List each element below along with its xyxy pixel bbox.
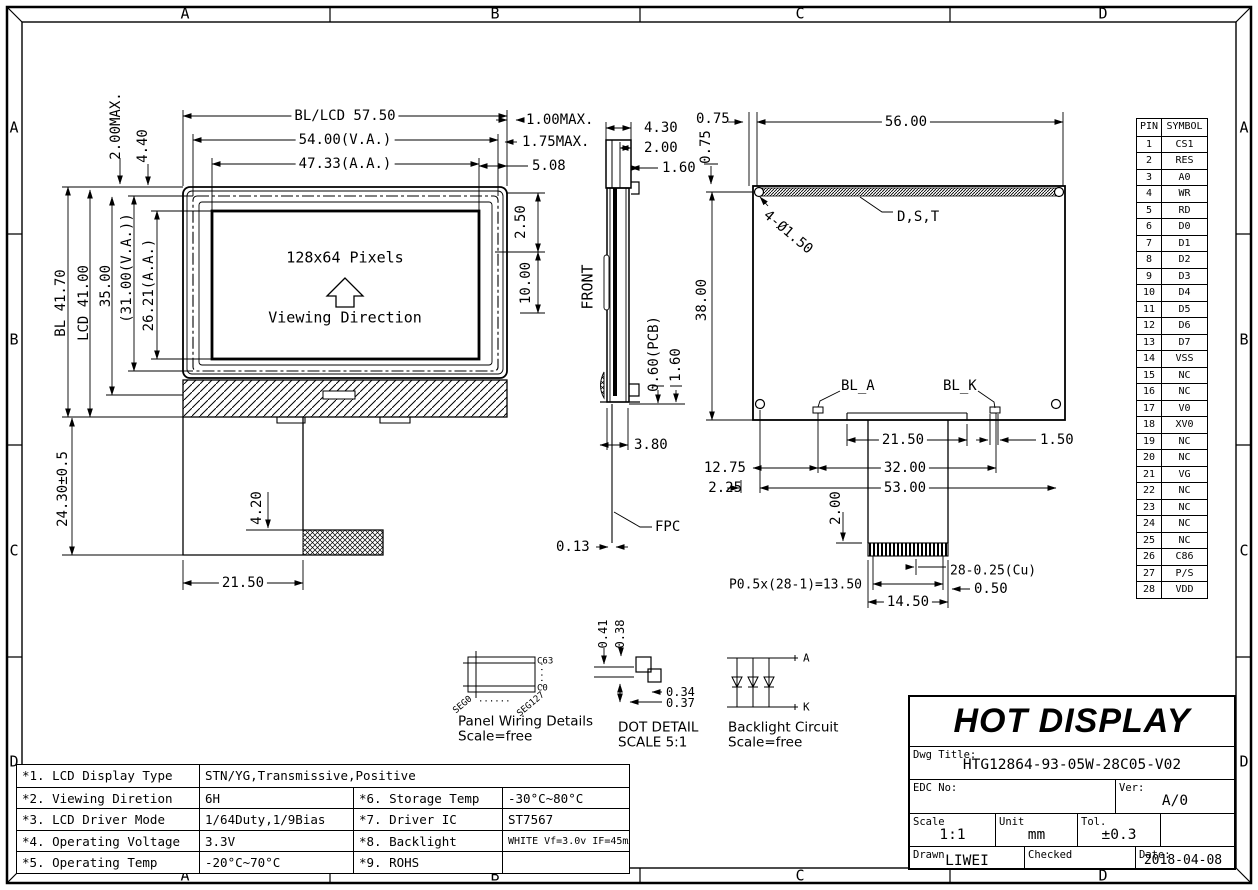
dim-aa-width: 47.33(A.A.) xyxy=(296,157,395,171)
dwg-title-value: HTG12864-93-05W-28C05-V02 xyxy=(910,757,1234,773)
date-cell: Date: 2018-04-08 xyxy=(1135,847,1230,868)
viewing-direction-label: Viewing Direction xyxy=(268,311,422,326)
dot-dim-0-37: 0.37 xyxy=(666,697,695,709)
pin-number: 13 xyxy=(1137,334,1161,351)
dim-bl-lcd-width: BL/LCD 57.50 xyxy=(291,109,398,123)
pin-number: 17 xyxy=(1137,400,1161,417)
pin-number: 10 xyxy=(1137,284,1161,301)
pin-number: 11 xyxy=(1137,301,1161,318)
dim-va-height: (31.00(V.A.)) xyxy=(120,213,134,323)
pin-symbol: VSS xyxy=(1161,350,1207,367)
title-block-edc-row: EDC No: Ver: A/0 xyxy=(910,779,1234,813)
pin-symbol: V0 xyxy=(1161,400,1207,417)
screen-resolution-label: 128x64 Pixels xyxy=(286,251,403,266)
dim-lcd-height: LCD 41.00 xyxy=(77,265,91,341)
pin-number: 25 xyxy=(1137,532,1161,549)
dim-12-75: 12.75 xyxy=(704,461,746,475)
pin-table-header-symbol: SYMBOL xyxy=(1161,119,1207,136)
spec-table: *1. LCD Display Type STN/YG,Transmissive… xyxy=(16,764,630,874)
pin-symbol: D6 xyxy=(1161,317,1207,334)
title-block: HOT DISPLAY Dwg Title: HTG12864-93-05W-2… xyxy=(908,695,1236,870)
dim-top-gap: 2.00MAX. xyxy=(109,92,123,159)
dot-dim-0-41: 0.41 xyxy=(597,620,609,649)
checked-label: Checked xyxy=(1028,849,1072,861)
spec-label: *9. ROHS xyxy=(353,851,502,873)
pin-number: 24 xyxy=(1137,515,1161,532)
spec-label: *6. Storage Temp xyxy=(353,787,502,809)
dst-label: D,S,T xyxy=(897,210,939,224)
spec-label: *1. LCD Display Type xyxy=(17,765,199,787)
pin-number: 2 xyxy=(1137,152,1161,169)
pin-number: 23 xyxy=(1137,499,1161,516)
bl-a-label: BL_A xyxy=(841,379,875,393)
backlight-cathode-label: K xyxy=(803,702,810,713)
dim-4-30: 4.30 xyxy=(644,121,678,135)
projection-symbol-cell xyxy=(1160,814,1234,846)
spec-value: -30°C~80°C xyxy=(502,787,629,809)
spec-value: WHITE Vf=3.0v IF=45mA xyxy=(502,830,629,852)
pin-symbol: D5 xyxy=(1161,301,1207,318)
dim-14-50: 14.50 xyxy=(884,595,932,609)
pin-number: 21 xyxy=(1137,466,1161,483)
dot-detail-title: DOT DETAIL xyxy=(618,721,698,735)
drawn-value: LIWEI xyxy=(910,853,1024,869)
dim-va-width: 54.00(V.A.) xyxy=(296,133,395,147)
dim-56-00: 56.00 xyxy=(882,115,930,129)
spec-value: -20°C~70°C xyxy=(199,851,353,873)
dim-10-00: 10.00 xyxy=(519,262,533,304)
dim-0-75-h: 0.75 xyxy=(696,112,730,126)
pin-symbol: D4 xyxy=(1161,284,1207,301)
pin-number: 15 xyxy=(1137,367,1161,384)
backlight-title: Backlight Circuit xyxy=(728,721,838,735)
pin-symbol: D1 xyxy=(1161,235,1207,252)
zone-col-top-c: C xyxy=(795,7,804,22)
backlight-circuit-drawing xyxy=(727,655,798,710)
pin-number: 18 xyxy=(1137,416,1161,433)
zone-row-left-a: A xyxy=(9,121,18,136)
pin-number: 8 xyxy=(1137,251,1161,268)
edc-no-label: EDC No: xyxy=(913,782,957,794)
zone-row-right-d: D xyxy=(1239,755,1248,770)
dim-aa-height: 26.21(A.A.) xyxy=(142,239,156,332)
pin-symbol: NC xyxy=(1161,482,1207,499)
pin-symbol: CS1 xyxy=(1161,136,1207,153)
date-value: 2018-04-08 xyxy=(1136,853,1230,868)
spec-label: *7. Driver IC xyxy=(353,808,502,830)
dot-dim-0-38: 0.38 xyxy=(614,620,626,649)
pin-symbol: NC xyxy=(1161,449,1207,466)
dim-bl-height: BL 41.70 xyxy=(54,269,68,336)
pin-number: 9 xyxy=(1137,268,1161,285)
pin-symbol: A0 xyxy=(1161,169,1207,186)
dim-0-50: 0.50 xyxy=(974,582,1008,596)
dim-tail-length: 24.30±0.5 xyxy=(56,451,70,527)
dim-38-00: 38.00 xyxy=(695,276,709,324)
pin-number: 5 xyxy=(1137,202,1161,219)
pin-symbol: D2 xyxy=(1161,251,1207,268)
tol-cell: Tol. ±0.3 xyxy=(1077,814,1160,846)
dim-cu-fingers: 28-0.25(Cu) xyxy=(950,565,1036,578)
pin-symbol: NC xyxy=(1161,383,1207,400)
dim-bezel-top: 4.40 xyxy=(136,129,150,163)
drawn-cell: Drawn LIWEI xyxy=(910,847,1024,868)
spec-label: *4. Operating Voltage xyxy=(17,830,199,852)
spec-label: *2. Viewing Diretion xyxy=(17,787,199,809)
panel-dots-horizontal: ...... xyxy=(478,696,511,705)
title-block-sign-row: Drawn LIWEI Checked Date: 2018-04-08 xyxy=(910,846,1234,868)
dim-21-50-back: 21.50 xyxy=(879,433,927,447)
dim-1-00-max: 1.00MAX. xyxy=(526,113,593,127)
dim-32-00: 32.00 xyxy=(881,461,929,475)
pin-symbol: XV0 xyxy=(1161,416,1207,433)
backlight-scale: Scale=free xyxy=(728,736,802,750)
spec-value: STN/YG,Transmissive,Positive xyxy=(199,765,629,787)
dim-tail-width: 21.50 xyxy=(219,576,267,590)
zone-col-top-b: B xyxy=(490,7,499,22)
dim-1-75-max: 1.75MAX. xyxy=(522,135,589,149)
title-block-dwg-row: Dwg Title: HTG12864-93-05W-28C05-V02 xyxy=(910,746,1234,779)
unit-cell: Unit mm xyxy=(995,814,1077,846)
zone-row-right-c: C xyxy=(1239,544,1248,559)
pin-symbol: P/S xyxy=(1161,565,1207,582)
side-view-drawing xyxy=(600,140,640,543)
spec-value: 1/64Duty,1/9Bias xyxy=(199,808,353,830)
pin-number: 19 xyxy=(1137,433,1161,450)
panel-wiring-scale: Scale=free xyxy=(458,730,532,744)
dim-1-60: 1.60 xyxy=(662,161,696,175)
pin-symbol: D3 xyxy=(1161,268,1207,285)
dim-2-50: 2.50 xyxy=(514,205,528,239)
ver-cell: Ver: A/0 xyxy=(1115,780,1234,813)
pin-table: PIN SYMBOL 1 CS1 2 RES 3 A0 4 WR 5 RD 6 … xyxy=(1136,118,1208,599)
pin-number: 27 xyxy=(1137,565,1161,582)
zone-col-bottom-d: D xyxy=(1098,869,1107,884)
dim-2-00-back: 2.00 xyxy=(829,491,843,525)
dot-detail-scale: SCALE 5:1 xyxy=(618,736,687,750)
pin-symbol: RD xyxy=(1161,202,1207,219)
pin-number: 1 xyxy=(1137,136,1161,153)
dim-total-thickness: 1.60 xyxy=(669,348,683,382)
tol-value: ±0.3 xyxy=(1078,827,1160,843)
pin-table-header-pin: PIN xyxy=(1137,119,1161,136)
dim-pcb-thickness: 0.60(PCB) xyxy=(647,316,661,392)
spec-label: *8. Backlight xyxy=(353,830,502,852)
pin-symbol: VDD xyxy=(1161,581,1207,598)
dim-3-80: 3.80 xyxy=(634,438,668,452)
pin-number: 3 xyxy=(1137,169,1161,186)
spec-value: 3.3V xyxy=(199,830,353,852)
dim-5-08: 5.08 xyxy=(532,159,566,173)
spec-label: *3. LCD Driver Mode xyxy=(17,808,199,830)
zone-col-top-d: D xyxy=(1098,7,1107,22)
pin-number: 12 xyxy=(1137,317,1161,334)
backlight-anode-label: A xyxy=(803,653,810,664)
dim-2-00: 2.00 xyxy=(644,141,678,155)
pin-number: 4 xyxy=(1137,185,1161,202)
zone-row-left-b: B xyxy=(9,333,18,348)
spec-value: 6H xyxy=(199,787,353,809)
pin-symbol: D7 xyxy=(1161,334,1207,351)
pin-number: 26 xyxy=(1137,548,1161,565)
scale-cell: Scale 1:1 xyxy=(910,814,995,846)
bl-k-label: BL_K xyxy=(943,379,977,393)
pin-symbol: NC xyxy=(1161,499,1207,516)
front-label: FRONT xyxy=(581,264,596,309)
fpc-label: FPC xyxy=(655,520,680,534)
scale-value: 1:1 xyxy=(910,827,995,843)
pin-symbol: NC xyxy=(1161,367,1207,384)
unit-value: mm xyxy=(996,827,1077,843)
dim-connector-height: 4.20 xyxy=(250,491,264,525)
company-name: HOT DISPLAY xyxy=(910,697,1234,745)
pin-number: 20 xyxy=(1137,449,1161,466)
pin-number: 22 xyxy=(1137,482,1161,499)
pin-symbol: WR xyxy=(1161,185,1207,202)
panel-wiring-title: Panel Wiring Details xyxy=(458,715,593,729)
pin-symbol: NC xyxy=(1161,532,1207,549)
zone-row-right-a: A xyxy=(1239,121,1248,136)
panel-wiring-detail-drawing xyxy=(463,651,535,698)
zone-row-left-c: C xyxy=(9,544,18,559)
pin-symbol: NC xyxy=(1161,515,1207,532)
pin-symbol: VG xyxy=(1161,466,1207,483)
pin-number: 7 xyxy=(1137,235,1161,252)
pin-number: 14 xyxy=(1137,350,1161,367)
dim-1-50: 1.50 xyxy=(1040,433,1074,447)
pin-symbol: D0 xyxy=(1161,218,1207,235)
dim-pin-pitch: P0.5x(28-1)=13.50 xyxy=(729,579,862,592)
front-view-drawing xyxy=(183,187,507,555)
pin-number: 16 xyxy=(1137,383,1161,400)
pin-symbol: RES xyxy=(1161,152,1207,169)
dim-fpc-thickness: 0.13 xyxy=(556,540,590,554)
zone-row-right-b: B xyxy=(1239,333,1248,348)
zone-col-top-a: A xyxy=(180,7,189,22)
dim-pcb-height: 35.00 xyxy=(99,265,113,307)
dim-53-00: 53.00 xyxy=(881,481,929,495)
dim-2-25: 2.25 xyxy=(708,481,742,495)
dim-0-75-v: 0.75 xyxy=(699,130,713,164)
pin-symbol: C86 xyxy=(1161,548,1207,565)
title-block-company-row: HOT DISPLAY xyxy=(910,697,1234,746)
spec-label: *5. Operating Temp xyxy=(17,851,199,873)
spec-value xyxy=(502,851,629,873)
ver-value: A/0 xyxy=(1116,793,1234,809)
edc-no-cell: EDC No: xyxy=(910,780,1115,813)
title-block-scale-row: Scale 1:1 Unit mm Tol. ±0.3 xyxy=(910,813,1234,846)
checked-cell: Checked xyxy=(1024,847,1135,868)
pin-symbol: NC xyxy=(1161,433,1207,450)
pin-number: 28 xyxy=(1137,581,1161,598)
spec-value: ST7567 xyxy=(502,808,629,830)
zone-col-bottom-c: C xyxy=(795,869,804,884)
drawing-sheet: A B C D A B C D A B C D A B C D BL/LCD 5… xyxy=(0,0,1258,890)
pin-number: 6 xyxy=(1137,218,1161,235)
dot-detail-drawing xyxy=(594,648,662,702)
